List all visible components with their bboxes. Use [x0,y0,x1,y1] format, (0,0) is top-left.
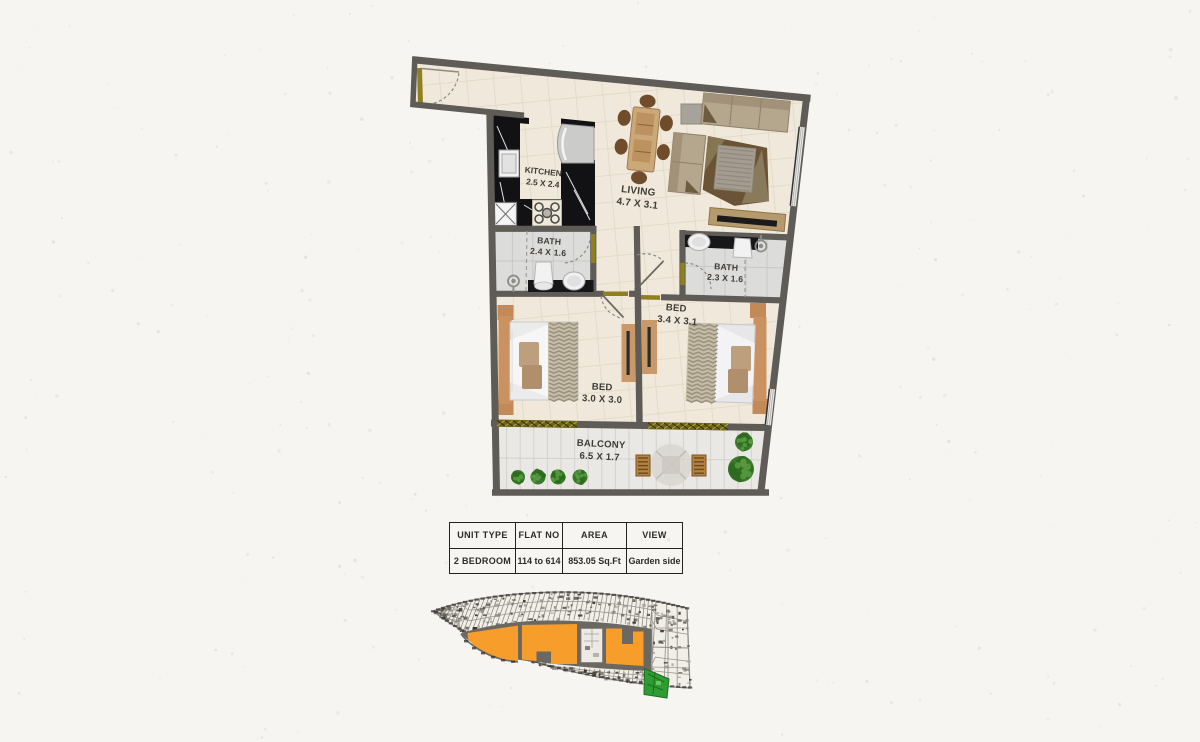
svg-text:BATH: BATH [714,261,739,273]
svg-text:3.0 X 3.0: 3.0 X 3.0 [582,393,623,406]
svg-text:BED: BED [591,381,612,393]
svg-text:BED: BED [665,302,687,315]
svg-text:BATH: BATH [537,235,562,247]
svg-text:6.5 X 1.7: 6.5 X 1.7 [579,450,620,463]
